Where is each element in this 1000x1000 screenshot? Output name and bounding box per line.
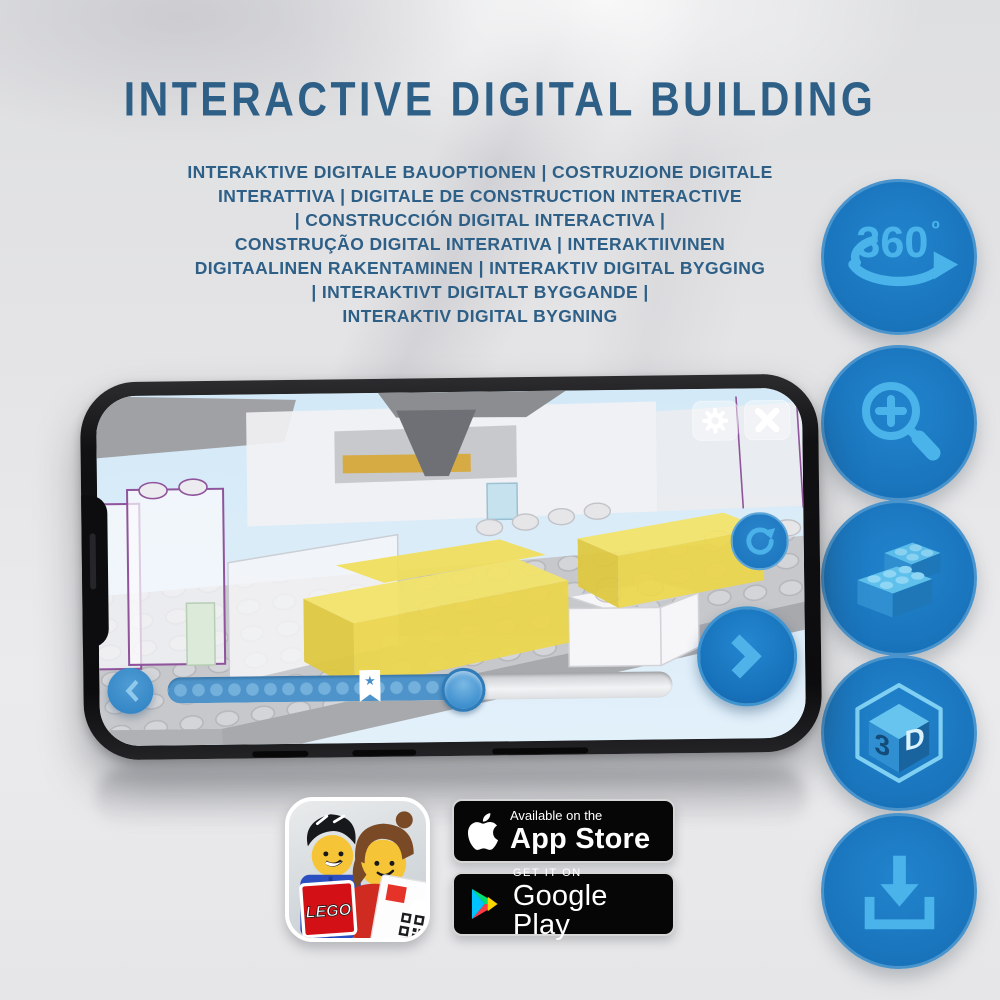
close-icon xyxy=(755,408,779,432)
progress-fill xyxy=(167,674,460,704)
lego-bricks-icon xyxy=(847,526,951,630)
feature-download xyxy=(821,813,977,969)
svg-text:360: 360 xyxy=(856,219,928,267)
feature-bricks xyxy=(821,500,977,656)
feature-zoom xyxy=(821,345,977,501)
gear-icon xyxy=(701,407,729,435)
chevron-right-icon xyxy=(730,634,765,678)
smartphone: ★ xyxy=(80,374,823,761)
google-play-name: Google Play xyxy=(513,882,659,940)
settings-button[interactable] xyxy=(692,400,738,441)
close-button[interactable] xyxy=(744,400,790,441)
app-screen: ★ xyxy=(96,388,806,747)
zoom-in-icon xyxy=(849,373,949,473)
feature-3d-view: 3 D xyxy=(821,655,977,811)
app-store-tagline: Available on the xyxy=(510,809,650,822)
phone-notch xyxy=(81,495,109,647)
lego-app-icon[interactable]: LEGO xyxy=(285,797,430,942)
subtitle-line: INTERATTIVA | DIGITALE DE CONSTRUCTION I… xyxy=(130,184,830,208)
svg-text:º: º xyxy=(931,216,939,241)
phone-port xyxy=(252,751,308,758)
app-store-name: App Store xyxy=(510,825,650,854)
subtitle-line: INTERAKTIVE DIGITALE BAUOPTIONEN | COSTR… xyxy=(130,160,830,184)
subtitle-line: | CONSTRUCCIÓN DIGITAL INTERACTIVA | xyxy=(130,208,830,232)
phone-reflection xyxy=(96,768,806,826)
feature-360-rotation: 360 º xyxy=(821,179,977,335)
google-play-badge[interactable]: GET IT ON Google Play xyxy=(452,872,675,936)
download-icon xyxy=(850,842,948,940)
lego-app-artwork: LEGO xyxy=(289,801,426,938)
google-play-tagline: GET IT ON xyxy=(513,868,659,879)
earpiece-speaker xyxy=(90,533,97,589)
svg-text:3: 3 xyxy=(875,728,891,764)
subtitle-line: CONSTRUÇÃO DIGITAL INTERATIVA | INTERAKT… xyxy=(130,232,830,256)
progress-handle[interactable] xyxy=(441,668,486,713)
rotate-icon xyxy=(743,524,777,558)
chevron-left-icon xyxy=(120,679,140,703)
multilingual-subtitle: INTERAKTIVE DIGITALE BAUOPTIONEN | COSTR… xyxy=(130,160,830,328)
phone-port xyxy=(352,749,416,756)
360-rotation-icon: 360 º xyxy=(838,205,960,309)
lego-logo-text: LEGO xyxy=(305,901,352,922)
svg-text:D: D xyxy=(904,721,924,758)
app-store-badge[interactable]: Available on the App Store xyxy=(452,799,675,863)
page-title: INTERACTIVE DIGITAL BUILDING xyxy=(0,72,1000,127)
subtitle-line: | INTERAKTIVT DIGITALT BYGGANDE | xyxy=(130,280,830,304)
3d-cube-icon: 3 D xyxy=(847,681,951,785)
phone-port xyxy=(492,747,588,754)
apple-icon xyxy=(468,813,498,850)
google-play-icon xyxy=(468,884,501,924)
subtitle-line: DIGITAALINEN RAKENTAMINEN | INTERAKTIV D… xyxy=(130,256,830,280)
subtitle-line: INTERAKTIV DIGITAL BYGNING xyxy=(130,304,830,328)
